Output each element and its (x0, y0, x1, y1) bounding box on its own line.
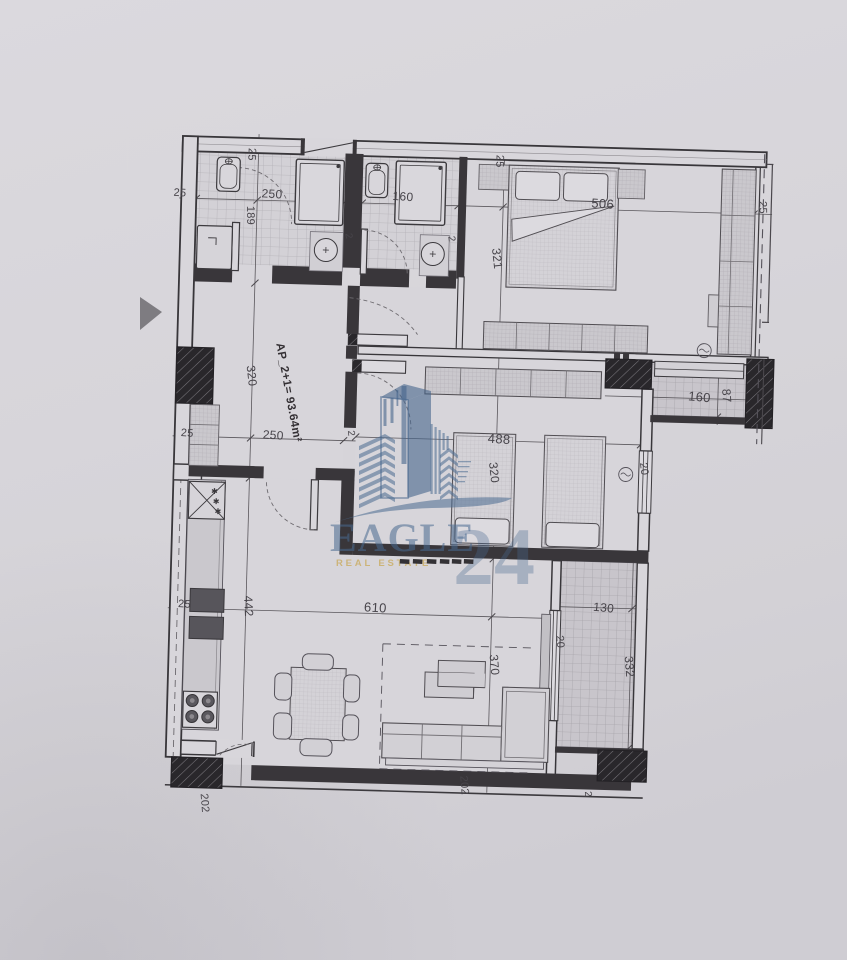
svg-text:321: 321 (489, 247, 505, 269)
svg-text:25: 25 (756, 201, 768, 214)
svg-text:✱: ✱ (214, 507, 221, 516)
svg-text:2: 2 (582, 791, 593, 798)
svg-text:✱: ✱ (211, 487, 218, 496)
svg-text:24: 24 (453, 511, 535, 602)
svg-text:✱: ✱ (213, 497, 220, 506)
svg-text:442: 442 (241, 595, 256, 617)
svg-text:20: 20 (637, 462, 650, 476)
svg-text:130: 130 (593, 600, 615, 616)
svg-text:25: 25 (180, 427, 194, 440)
svg-text:25: 25 (178, 598, 192, 611)
svg-text:320: 320 (486, 461, 502, 483)
svg-text:320: 320 (244, 365, 260, 387)
svg-text:506: 506 (591, 195, 614, 211)
svg-text:250: 250 (261, 186, 283, 201)
svg-text:332: 332 (622, 656, 638, 678)
svg-text:370: 370 (487, 654, 503, 676)
svg-text:189: 189 (244, 206, 256, 225)
svg-text:25: 25 (493, 155, 505, 168)
svg-text:202: 202 (457, 775, 470, 795)
svg-text:20: 20 (553, 635, 566, 649)
svg-text:87: 87 (719, 388, 734, 403)
svg-text:25: 25 (173, 187, 187, 200)
svg-text:202: 202 (198, 793, 211, 813)
svg-text:160: 160 (688, 388, 712, 405)
svg-text:25: 25 (245, 148, 257, 161)
svg-text:488: 488 (487, 431, 510, 447)
svg-text:250: 250 (262, 427, 284, 442)
svg-text:160: 160 (392, 189, 414, 204)
svg-text:610: 610 (364, 599, 387, 615)
